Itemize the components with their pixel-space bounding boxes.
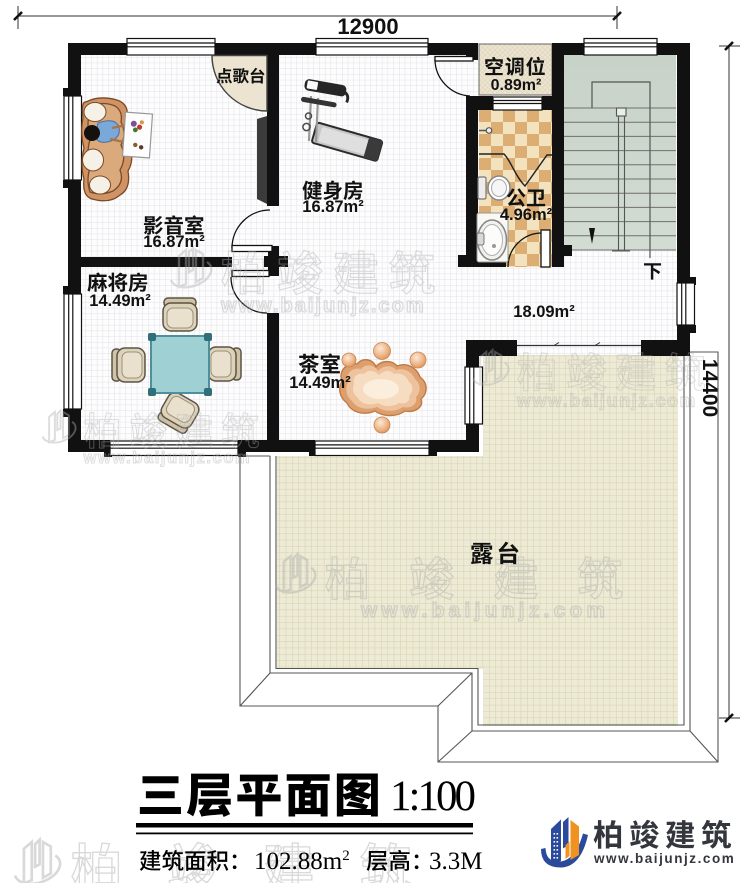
svg-text:1:100: 1:100 [390,773,474,820]
svg-text:102.88m2: 102.88m2 [254,848,350,875]
svg-text:16.87m²: 16.87m² [143,233,205,251]
svg-text:18.09m²: 18.09m² [513,303,575,321]
svg-text:3.3M: 3.3M [429,848,482,875]
svg-text:14.49m²: 14.49m² [289,374,351,392]
svg-text:14400: 14400 [698,359,721,417]
svg-text:12900: 12900 [337,14,398,39]
svg-text:16.87m²: 16.87m² [302,198,364,216]
svg-text:www.baijunjz.com: www.baijunjz.com [593,851,735,866]
svg-text:4.96m²: 4.96m² [500,206,553,224]
svg-text:14.49m²: 14.49m² [89,292,151,310]
svg-text:0.89m²: 0.89m² [491,77,542,94]
